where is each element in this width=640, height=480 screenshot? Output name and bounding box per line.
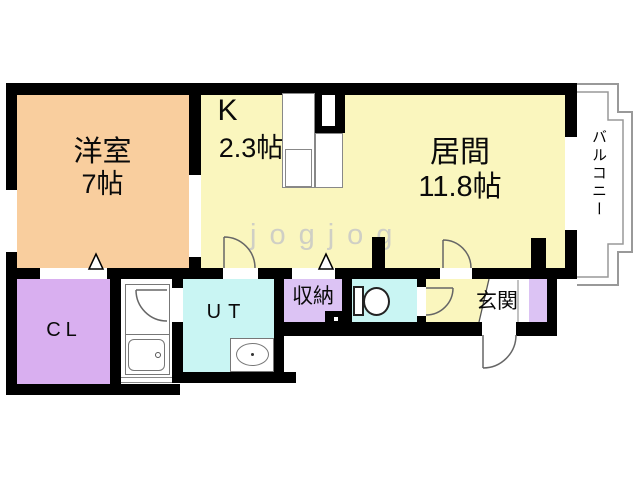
- entrance-label: 玄関: [461, 290, 533, 314]
- room-name: 洋室: [30, 136, 175, 169]
- laundry-door-swing: [136, 290, 167, 321]
- storage-door-triangle: [319, 254, 333, 269]
- utility-label: UT: [188, 301, 266, 324]
- balcony-label: バルコニー: [588, 129, 609, 239]
- room-size: 7帖: [30, 169, 175, 200]
- storage-label: 収納: [283, 285, 343, 309]
- toilet-door-swing: [426, 288, 453, 315]
- plan-linework: [0, 0, 640, 480]
- living-room-label: 居間 11.8帖: [385, 136, 535, 204]
- floor-plan: jogjog: [0, 0, 640, 480]
- room-name: 居間: [385, 136, 535, 171]
- living-door-swing: [443, 240, 471, 268]
- kitchen-size-label: 2.3帖: [196, 133, 306, 164]
- room-size: 11.8帖: [385, 171, 535, 204]
- front-door-swing: [483, 335, 516, 368]
- western-room-label: 洋室 7帖: [30, 136, 175, 200]
- kitchen-label: K: [205, 94, 250, 129]
- closet-door-triangle: [89, 254, 103, 269]
- utility-door-swing: [224, 237, 255, 268]
- closet-label: CL: [28, 319, 100, 342]
